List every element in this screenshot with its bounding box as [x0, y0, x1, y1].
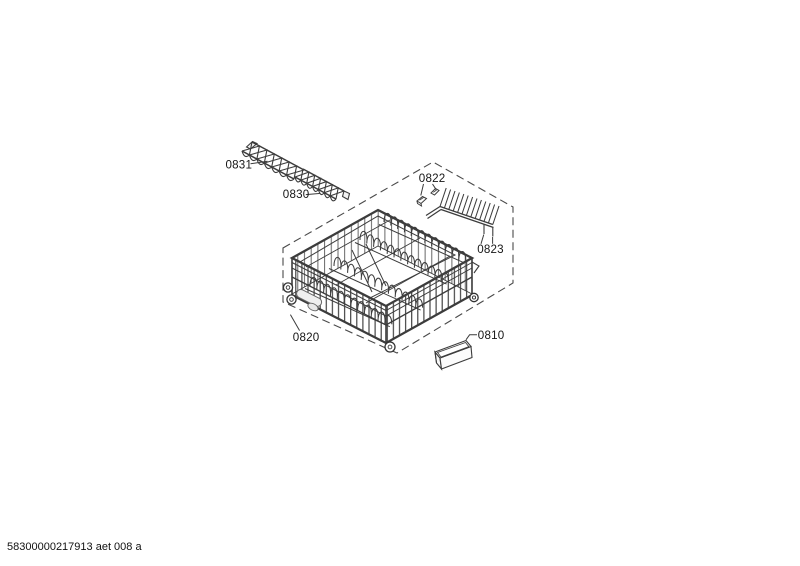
exploded-view-diagram: 0831 0830 0822 0823 0820 0810: [0, 0, 800, 566]
leader-line-0822-left: [421, 184, 424, 196]
part-label-0830[interactable]: 0830: [283, 188, 310, 201]
part-label-0823[interactable]: 0823: [477, 243, 504, 256]
leader-line-0820: [290, 315, 299, 331]
part-drawing-0823-tine-insert: [426, 188, 499, 237]
part-label-0820[interactable]: 0820: [293, 331, 320, 344]
document-number: 58300000217913 aet 008 a: [7, 541, 142, 553]
leader-line-0810: [466, 335, 477, 340]
part-drawing-0810-tray: [435, 341, 472, 370]
part-label-0810[interactable]: 0810: [478, 329, 505, 342]
diagram-page: 0831 0830 0822 0823 0820 0810 5830000021…: [0, 0, 800, 566]
part-drawing-0822-clips: [417, 189, 439, 207]
part-label-0831[interactable]: 0831: [226, 159, 253, 172]
part-label-0822[interactable]: 0822: [419, 172, 446, 185]
